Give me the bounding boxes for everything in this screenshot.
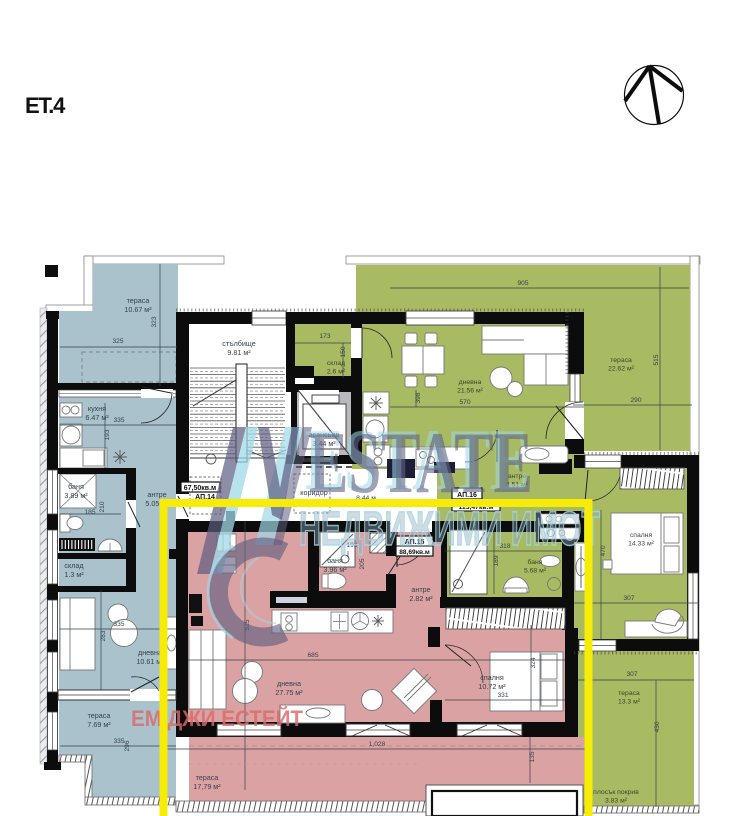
svg-text:685: 685 (307, 652, 318, 659)
svg-text:905: 905 (517, 280, 528, 287)
svg-text:тераса17,79 м²: тераса17,79 м² (193, 773, 221, 791)
svg-text:430: 430 (654, 721, 661, 732)
svg-text:антре2.82 м²: антре2.82 м² (409, 585, 433, 603)
svg-text:173: 173 (319, 333, 330, 340)
svg-text:ESTATE: ESTATE (309, 415, 533, 512)
svg-text:185: 185 (84, 509, 95, 516)
svg-text:тераса7.69 м²: тераса7.69 м² (87, 711, 111, 729)
svg-text:спалня14.33 м²: спалня14.33 м² (628, 532, 655, 548)
svg-text:тераса13.3 м²: тераса13.3 м² (618, 690, 641, 706)
svg-text:склад2.6 м²: склад2.6 м² (327, 360, 346, 376)
svg-text:335: 335 (113, 621, 124, 628)
svg-text:ЕТ.4: ЕТ.4 (25, 93, 66, 118)
svg-text:дневна27.75 м²: дневна27.75 м² (275, 679, 303, 697)
svg-text:205: 205 (359, 558, 366, 569)
svg-text:331: 331 (497, 692, 508, 699)
svg-text:325: 325 (112, 338, 123, 345)
svg-text:193: 193 (104, 429, 111, 440)
svg-text:склад1.3 м²: склад1.3 м² (64, 561, 84, 579)
svg-text:кухня6.47 м²: кухня6.47 м² (85, 404, 109, 422)
svg-text:дневна21.56 м²: дневна21.56 м² (457, 379, 484, 395)
svg-text:283: 283 (100, 630, 107, 641)
svg-text:67,50кв.м: 67,50кв.м (184, 485, 216, 492)
svg-text:470: 470 (600, 545, 607, 556)
svg-text:515: 515 (653, 354, 660, 365)
svg-text:150: 150 (340, 346, 347, 357)
svg-text:тераса10.67 м²: тераса10.67 м² (124, 296, 152, 314)
svg-text:НЕДВИЖИМИ ИМОТ: НЕДВИЖИМИ ИМОТ (299, 503, 600, 556)
svg-text:1,028: 1,028 (369, 741, 386, 748)
svg-text:323: 323 (151, 316, 158, 327)
svg-text:307: 307 (623, 595, 634, 602)
svg-text:189: 189 (493, 555, 500, 566)
svg-text:210: 210 (99, 501, 106, 512)
svg-text:тераса22.62 м²: тераса22.62 м² (608, 357, 635, 373)
svg-text:спалня10.72 м²: спалня10.72 м² (478, 673, 506, 691)
svg-text:290: 290 (630, 397, 641, 404)
svg-text:307: 307 (626, 671, 637, 678)
svg-text:324: 324 (530, 657, 537, 668)
svg-text:398: 398 (415, 392, 422, 403)
svg-text:ЕМ ДЖИ ЕСТЕЙТ: ЕМ ДЖИ ЕСТЕЙТ (131, 706, 304, 731)
svg-text:335: 335 (113, 417, 124, 424)
svg-text:296: 296 (124, 740, 131, 751)
svg-text:570: 570 (459, 399, 470, 406)
svg-text:135: 135 (529, 751, 536, 762)
